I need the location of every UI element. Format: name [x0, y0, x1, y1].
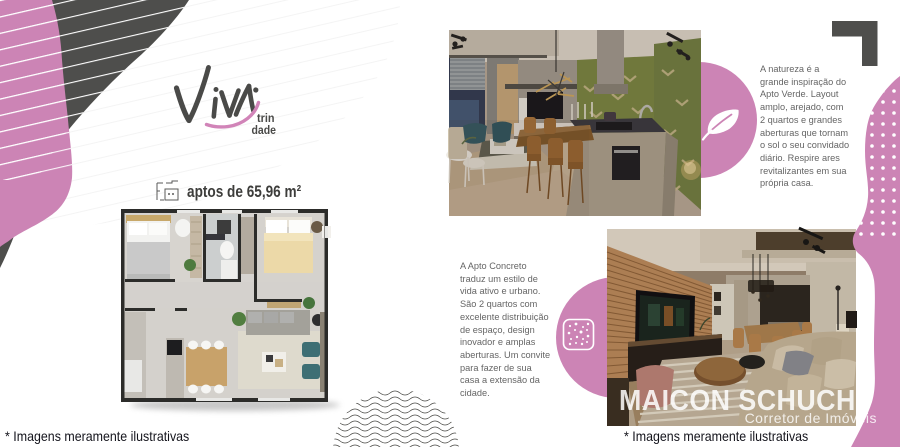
svg-text:dade: dade: [252, 124, 277, 137]
